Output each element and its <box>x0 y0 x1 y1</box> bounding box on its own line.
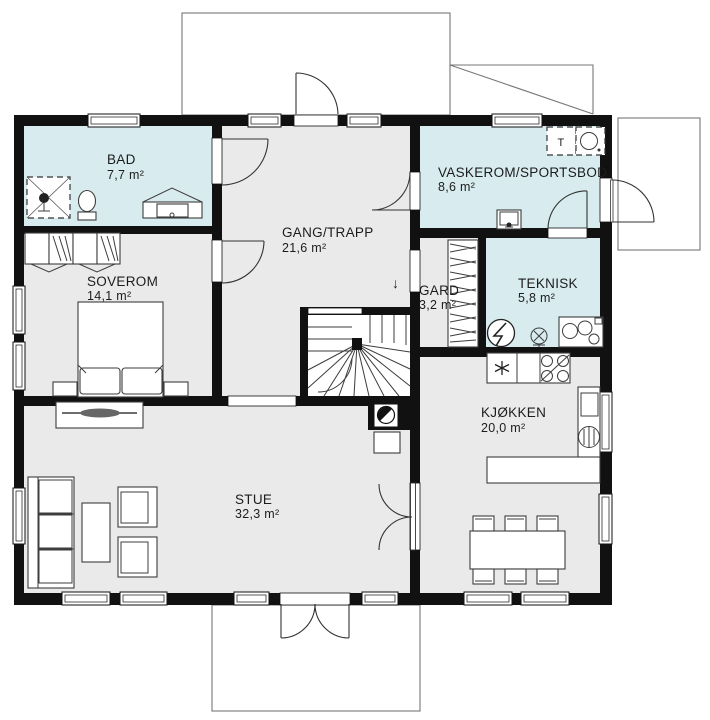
window <box>13 488 25 544</box>
electrical-panel-icon <box>488 320 515 347</box>
dining-chair <box>505 516 526 531</box>
washing-machine-icon <box>576 127 605 155</box>
wall-gard-teknisk <box>478 238 486 347</box>
ventilation-unit-icon <box>559 317 603 347</box>
laundry-sink-icon <box>497 210 521 229</box>
wood-stove <box>374 432 400 453</box>
entrance-door-swing <box>296 73 338 114</box>
room-label-vaskerom: VASKEROM/SPORTSBOD <box>438 165 607 180</box>
toilet-icon <box>78 191 96 221</box>
dining-chair <box>473 569 494 584</box>
room-label-gang: GANG/TRAPP <box>282 225 374 240</box>
window <box>88 114 140 127</box>
entrance-ramp-outline <box>450 65 593 114</box>
window <box>234 592 269 605</box>
stair-newel-post <box>352 338 362 350</box>
terrace-outline <box>212 605 420 711</box>
dining-chair <box>537 569 558 584</box>
room-area-gard: 3,2 m² <box>419 298 456 312</box>
window <box>599 494 612 544</box>
tv-icon <box>80 409 120 418</box>
window <box>13 286 25 334</box>
dining-chair <box>505 569 526 584</box>
room-label-soverom: SOVEROM <box>87 274 158 289</box>
window <box>347 114 381 127</box>
room-area-vaskerom: 8,6 m² <box>438 180 475 194</box>
stair-top-tread <box>308 308 362 314</box>
armchair <box>118 537 157 577</box>
shower-icon <box>27 177 70 218</box>
room-label-bad: BAD <box>107 152 136 167</box>
floor-plan-canvas: T <box>0 0 710 720</box>
window <box>248 114 281 127</box>
window <box>492 114 542 127</box>
dining-chair <box>537 516 558 531</box>
room-label-gard: GARD <box>419 283 459 298</box>
svg-text:T: T <box>557 137 564 149</box>
kitchen-counter-right <box>578 387 600 460</box>
window <box>13 342 25 390</box>
exterior-side-door-slab <box>611 180 614 222</box>
room-area-kjokken: 20,0 m² <box>481 421 525 435</box>
wall-stair-left <box>300 307 308 396</box>
soverom-door-opening <box>212 240 222 282</box>
window <box>464 592 512 605</box>
nightstand-right <box>164 382 188 396</box>
kitchen-island <box>487 457 600 483</box>
room-area-teknisk: 5,8 m² <box>518 291 555 305</box>
coffee-table <box>82 503 110 562</box>
room-label-stue: STUE <box>235 492 272 507</box>
tv-bench <box>56 402 143 428</box>
vaskerom-door-opening <box>410 172 420 210</box>
window <box>120 592 167 605</box>
room-area-soverom: 14,1 m² <box>87 289 131 303</box>
dining-chair <box>473 516 494 531</box>
dining-set <box>470 516 565 584</box>
teknisk-door-opening <box>548 228 587 238</box>
kitchen-counter-top <box>487 353 570 383</box>
double-bed <box>78 302 163 397</box>
room-stue-floor <box>24 406 410 593</box>
room-area-bad: 7,7 m² <box>107 168 144 182</box>
entrance-door-opening <box>294 115 338 126</box>
room-label-teknisk: TEKNISK <box>518 276 578 291</box>
dryer-icon: T <box>547 127 576 155</box>
terrace-door-opening <box>280 593 350 605</box>
nightstand-left <box>53 382 77 396</box>
dining-table <box>470 531 565 569</box>
armchair <box>118 487 157 527</box>
stairs-down-arrow-icon: ↓ <box>392 275 399 291</box>
sofa <box>28 477 74 588</box>
window <box>521 592 569 605</box>
bad-door-opening <box>212 138 222 184</box>
floor-plan: T <box>0 0 710 720</box>
room-area-gang: 21,6 m² <box>282 241 326 255</box>
gang-stue-opening <box>228 396 296 406</box>
window <box>599 392 612 452</box>
window <box>62 592 110 605</box>
window <box>362 592 398 605</box>
entrance-porch-outline <box>182 13 450 115</box>
terrace-double-door <box>281 604 349 638</box>
room-label-kjokken: KJØKKEN <box>481 405 546 420</box>
room-area-stue: 32,3 m² <box>235 507 279 521</box>
